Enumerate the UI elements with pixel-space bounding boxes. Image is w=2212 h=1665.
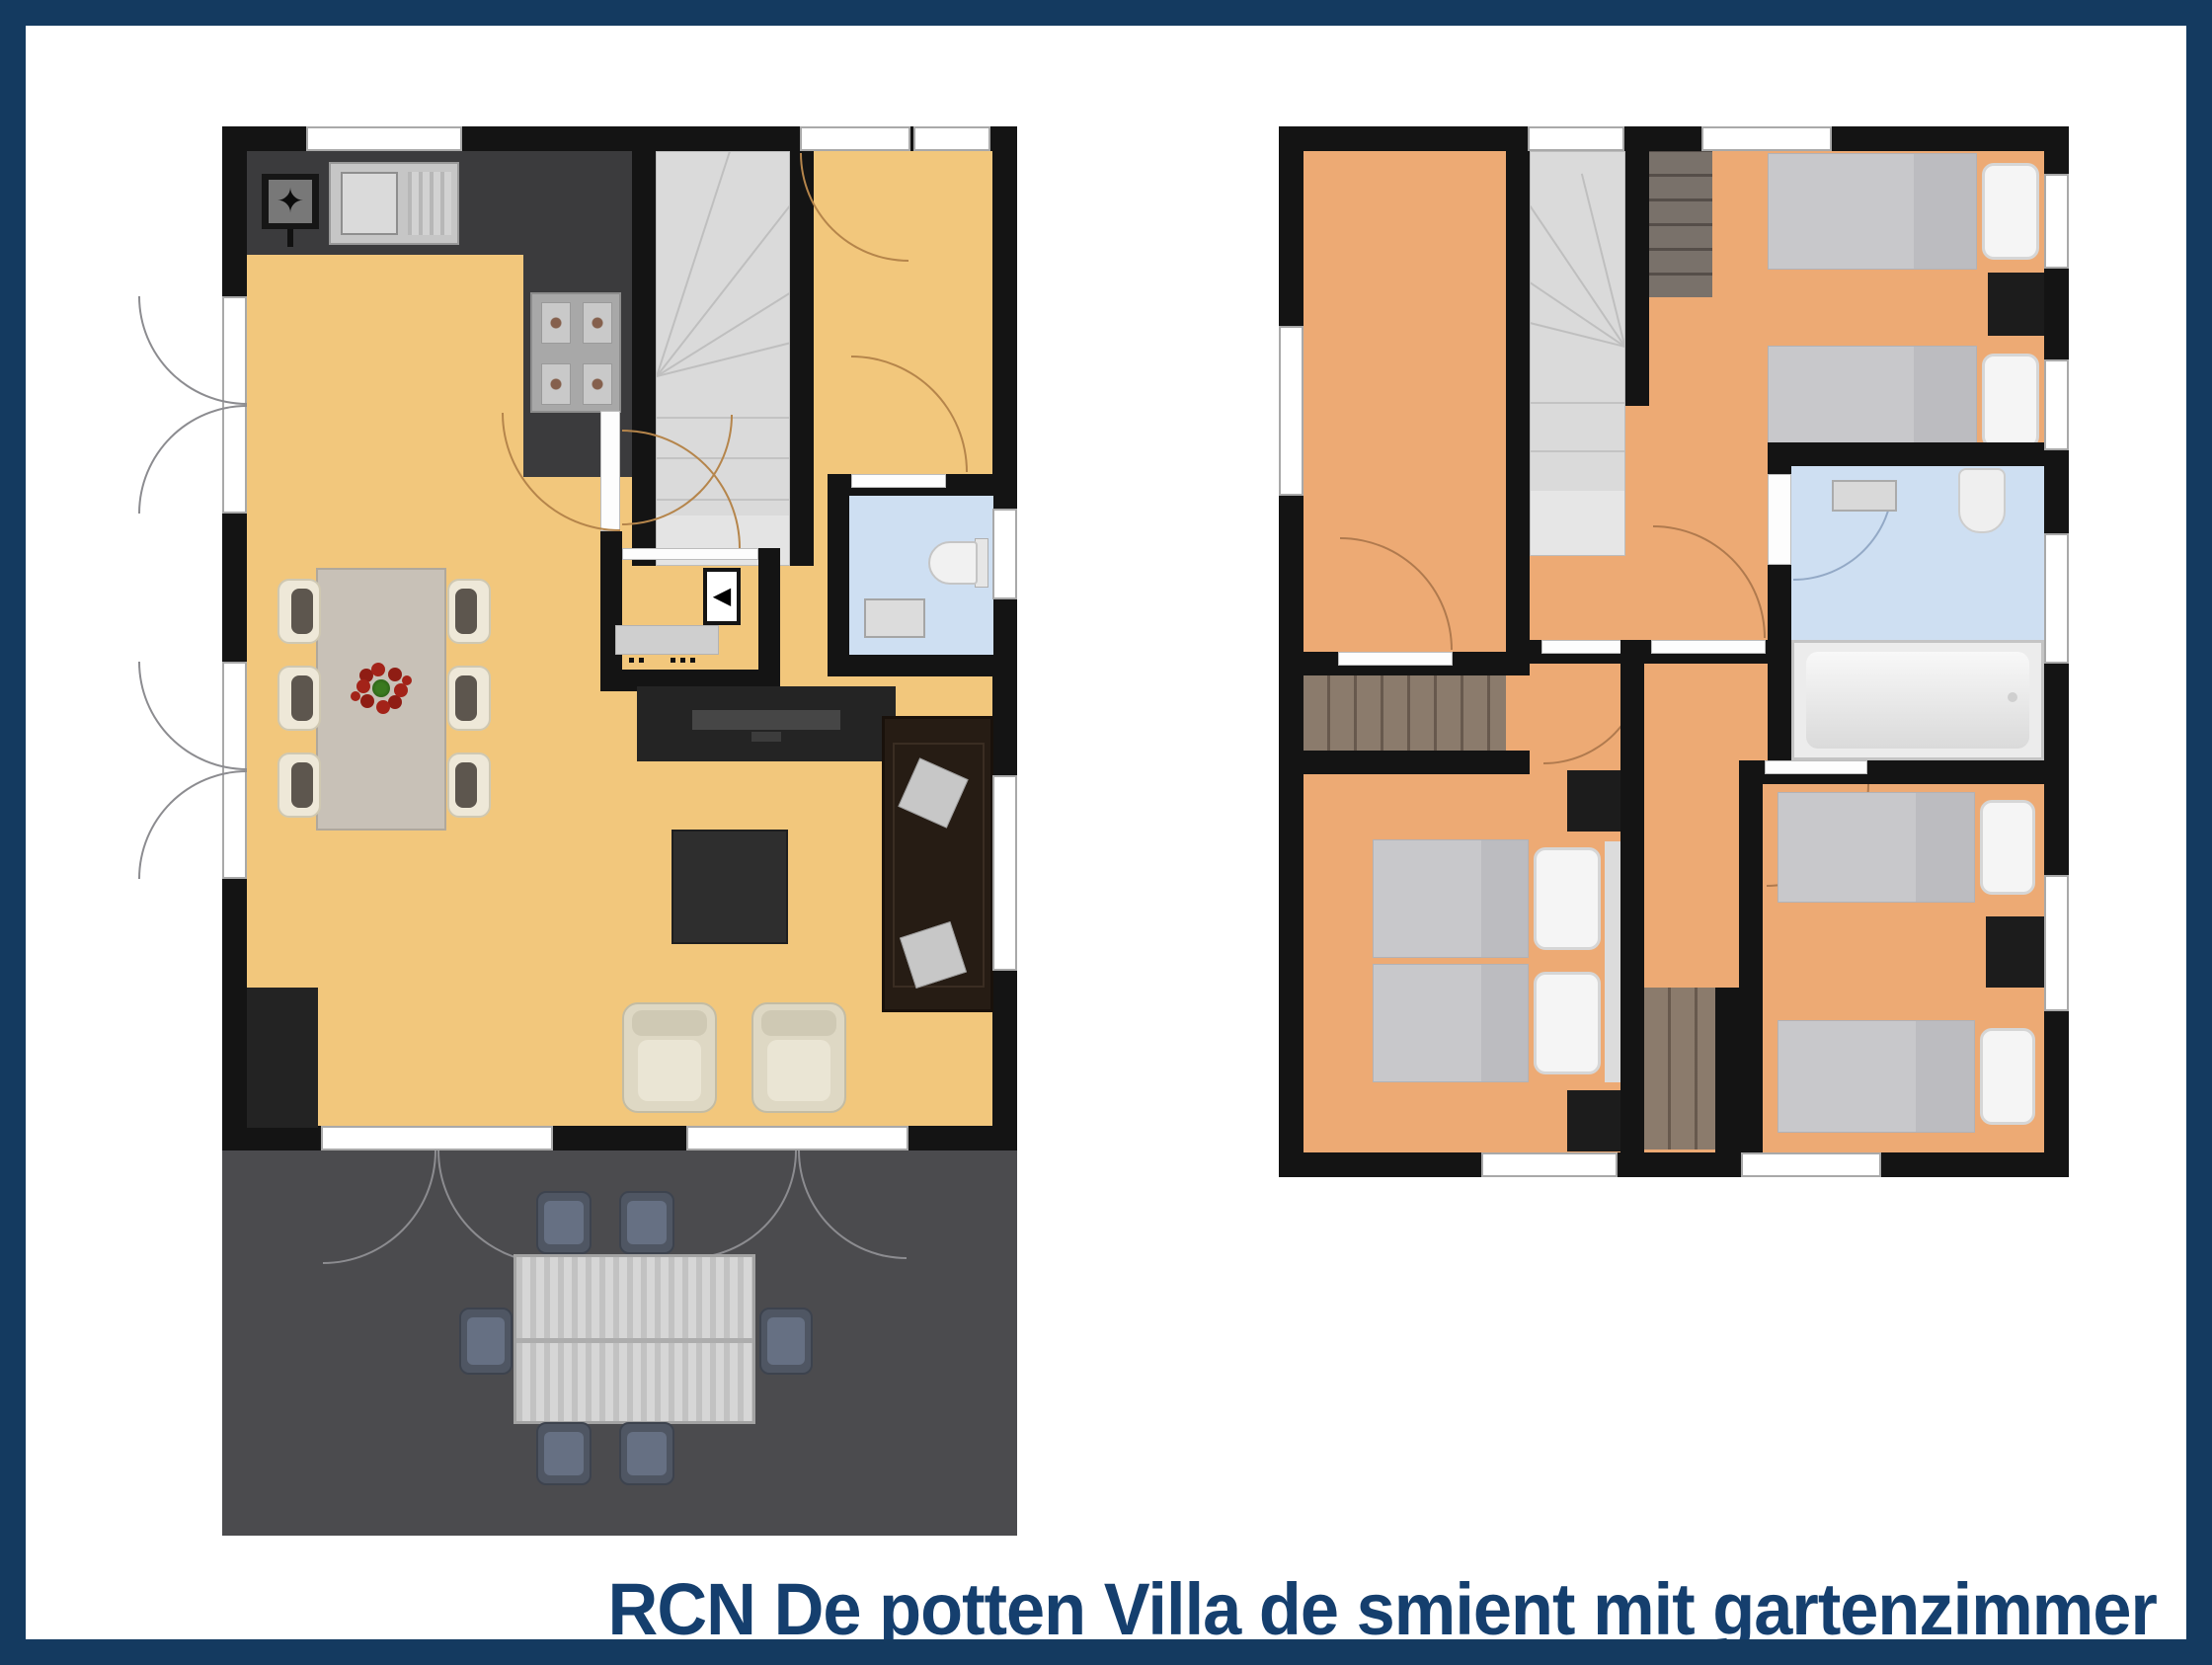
- table-seam: [516, 1338, 752, 1343]
- bed-pillow: [1534, 847, 1601, 950]
- chair-seat: [767, 1317, 805, 1365]
- staircase: [1530, 151, 1625, 556]
- armchair-seat: [767, 1040, 830, 1101]
- window: [1528, 126, 1624, 151]
- armchair-back: [761, 1010, 836, 1036]
- wall-segment: [1739, 784, 1763, 1152]
- wall-segment: [828, 655, 993, 676]
- armchair: [622, 1002, 717, 1113]
- burner: [541, 363, 571, 405]
- stair-landing: [1531, 491, 1624, 555]
- window: [992, 775, 1017, 971]
- stove: [530, 292, 621, 413]
- washer-arrow-glyph: ◀: [713, 585, 731, 608]
- double-bed-mattress: [1373, 964, 1529, 1082]
- caption: RCN De potten Villa de smient mit garten…: [608, 1567, 2157, 1651]
- burner: [583, 302, 612, 344]
- door-threshold: [1651, 640, 1766, 654]
- door-threshold: [622, 548, 758, 560]
- door-arc: [138, 296, 247, 405]
- coffee-table: [671, 830, 788, 944]
- outdoor-chair: [536, 1422, 592, 1485]
- built-in-wardrobe: [1303, 675, 1506, 751]
- utility-knobs: [629, 658, 634, 663]
- wall-segment: [790, 151, 814, 566]
- cabinet: [247, 988, 318, 1128]
- dining-chair: [447, 666, 491, 731]
- door-arc: [138, 662, 247, 770]
- door-threshold: [1541, 640, 1624, 654]
- window: [1701, 126, 1832, 151]
- chair-seat: [455, 675, 477, 721]
- wall-segment: [1620, 640, 1644, 1152]
- bed-pillow: [1980, 1028, 2035, 1125]
- utility-shelf: [615, 625, 719, 655]
- bed-sheet-fold: [1914, 154, 1976, 269]
- bathtub: [1791, 640, 2044, 760]
- single-bed: [1768, 346, 1977, 456]
- nightstand: [1988, 273, 2044, 336]
- bathtub-basin: [1806, 652, 2029, 749]
- wall-segment: [828, 474, 849, 676]
- fridge-handle: [287, 229, 293, 247]
- nightstand: [1986, 916, 2044, 988]
- bed-sheet-fold: [1916, 1021, 1974, 1132]
- terrace-door: [321, 1126, 553, 1150]
- single-bed: [1768, 153, 1977, 270]
- dining-chair: [447, 579, 491, 644]
- window: [2044, 174, 2069, 269]
- bed-pillow: [1534, 972, 1601, 1074]
- washing-machine-icon: ◀: [703, 568, 741, 625]
- wall-segment: [1715, 988, 1739, 1152]
- dining-chair: [277, 666, 321, 731]
- bed-sheet-fold: [1481, 840, 1528, 957]
- nightstand: [1567, 770, 1620, 832]
- tv-stand: [751, 732, 781, 742]
- tv-sideboard: [637, 686, 896, 761]
- chair-seat: [291, 589, 313, 634]
- double-bed-mattress: [1373, 839, 1529, 958]
- window: [2044, 359, 2069, 450]
- window: [1279, 326, 1303, 496]
- chair-seat: [455, 589, 477, 634]
- chair-seat: [467, 1317, 505, 1365]
- tv-icon: [692, 710, 840, 730]
- outdoor-chair: [619, 1422, 674, 1485]
- bathtub-drain: [2008, 692, 2017, 702]
- window: [1741, 1152, 1881, 1177]
- armchair-back: [632, 1010, 707, 1036]
- outdoor-chair: [536, 1191, 592, 1254]
- chair-seat: [627, 1432, 667, 1475]
- ground-floor-plan: ✦ ◀: [222, 126, 1017, 1536]
- wall-segment: [1625, 151, 1649, 406]
- window: [992, 509, 1017, 599]
- kitchen-sink: [329, 162, 459, 245]
- corner-sofa: [882, 716, 993, 1012]
- entrance-door: [800, 126, 910, 151]
- bed-headboard: [1605, 841, 1620, 1082]
- window: [1481, 1152, 1618, 1177]
- upper-floor-plan: [1279, 126, 2069, 1177]
- outdoor-table: [513, 1254, 755, 1424]
- terrace-door: [686, 1126, 908, 1150]
- wall-segment: [1768, 442, 2044, 466]
- nightstand: [1567, 1090, 1620, 1151]
- fridge-icon: ✦: [262, 174, 319, 229]
- single-bed: [1777, 792, 1975, 903]
- window: [306, 126, 462, 151]
- chair-seat: [544, 1201, 584, 1244]
- stair-step: [1531, 402, 1624, 404]
- door-arc: [138, 770, 247, 879]
- window: [2044, 875, 2069, 1011]
- armchair-seat: [638, 1040, 701, 1101]
- sink-drainer: [408, 172, 451, 235]
- dining-table: [316, 568, 446, 831]
- outdoor-chair: [759, 1308, 813, 1375]
- fridge-star-glyph: ✦: [276, 185, 305, 218]
- toilet: [1958, 468, 2006, 533]
- sink-basin: [341, 172, 398, 235]
- door-threshold: [1768, 474, 1791, 565]
- door-threshold: [851, 474, 946, 488]
- door-arc: [138, 405, 247, 514]
- washbasin: [1832, 480, 1897, 512]
- dining-chair: [447, 753, 491, 818]
- bed-pillow: [1982, 354, 2039, 448]
- hallway-wood-floor: [1644, 988, 1715, 1150]
- armchair: [751, 1002, 846, 1113]
- bed-sheet-fold: [1914, 347, 1976, 455]
- burner: [541, 302, 571, 344]
- outdoor-chair: [459, 1308, 513, 1375]
- bed-sheet-fold: [1481, 965, 1528, 1081]
- stair-step: [1531, 450, 1624, 452]
- bed-pillow: [1982, 163, 2039, 260]
- bed-pillow: [1980, 800, 2035, 895]
- door-threshold: [1338, 652, 1453, 666]
- chair-seat: [291, 675, 313, 721]
- window: [913, 126, 990, 151]
- wall-segment: [1303, 751, 1530, 774]
- chair-seat: [544, 1432, 584, 1475]
- door-threshold: [1765, 760, 1867, 774]
- stair-line: [657, 314, 790, 377]
- burner: [583, 363, 612, 405]
- built-in-wardrobe: [1649, 151, 1712, 297]
- chair-seat: [627, 1201, 667, 1244]
- single-bed: [1777, 1020, 1975, 1133]
- dining-chair: [277, 579, 321, 644]
- chair-seat: [455, 762, 477, 808]
- flower-centerpiece: [372, 679, 390, 697]
- bed-sheet-fold: [1916, 793, 1974, 902]
- hand-basin: [864, 598, 925, 638]
- wall-segment: [1506, 151, 1530, 664]
- toilet-bowl: [928, 541, 978, 585]
- stair-line: [656, 151, 736, 376]
- window: [2044, 533, 2069, 664]
- chair-seat: [291, 762, 313, 808]
- outdoor-chair: [619, 1191, 674, 1254]
- dining-chair: [277, 753, 321, 818]
